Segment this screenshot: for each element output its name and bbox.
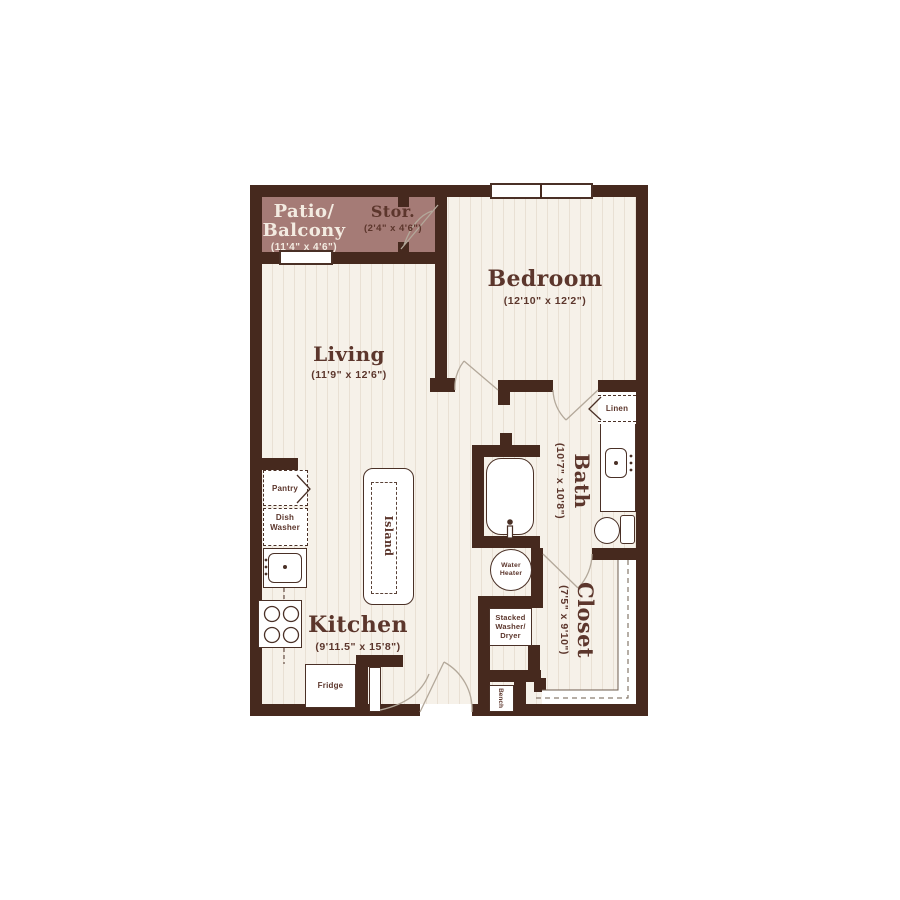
bedroom-label: Bedroom (12'10" x 12'2")	[465, 268, 625, 307]
linen-dash-bottom	[598, 421, 636, 422]
entry-closet-door-leaf	[369, 667, 381, 712]
wall-hall-b	[498, 380, 553, 392]
living-dims: (11'9" x 12'6")	[269, 369, 429, 381]
wall-tub-left	[472, 445, 484, 548]
bath-dims: (10'7" x 10'8")	[554, 443, 566, 519]
kitchen-sink	[268, 553, 302, 583]
wall-patio-b	[332, 252, 447, 264]
storage-title: Stor.	[348, 204, 438, 221]
kitchen-dims: (9'11.5" x 15'8")	[278, 641, 438, 653]
storage-label: Stor. (2'4" x 4'6")	[348, 204, 438, 234]
water-heater-label: Water Heater	[488, 562, 534, 578]
dishwasher-label-line1: Dish	[263, 513, 307, 523]
patio-dims: (11'4" x 4'6")	[258, 242, 350, 253]
kitchen-label: Kitchen (9'11.5" x 15'8")	[278, 614, 438, 653]
washer-dryer-label: Stacked Washer/ Dryer	[489, 613, 532, 640]
wall-fridge-bar	[356, 655, 403, 667]
wall-right	[636, 185, 648, 716]
wall-tub-top	[472, 445, 540, 457]
wall-bench-right	[514, 682, 526, 716]
closet-label: Closet (7'5" x 9'10")	[554, 545, 600, 695]
fridge-label: Fridge	[305, 681, 356, 691]
bench-label-text: Bench	[498, 688, 505, 708]
vanity-sink	[605, 448, 627, 478]
floor-plan-canvas: Patio/ Balcony (11'4" x 4'6") Stor. (2'4…	[0, 0, 900, 900]
bathtub	[486, 458, 534, 535]
island-label: Island	[380, 476, 396, 596]
closet-shelf-right	[618, 560, 636, 704]
living-label: Living (11'9" x 12'6")	[269, 344, 429, 381]
washer-dryer-label-line1: Stacked	[489, 613, 532, 622]
dishwasher-label-line2: Washer	[263, 523, 307, 533]
linen-dash-top	[598, 395, 636, 396]
toilet-tank	[620, 515, 635, 544]
wall-wd-stub	[528, 645, 540, 673]
bedroom-window-divider	[540, 184, 542, 198]
water-heater-label-line2: Heater	[488, 570, 534, 578]
pantry-label: Pantry	[263, 484, 307, 494]
wall-patio-a	[250, 252, 280, 264]
island-label-text: Island	[382, 516, 394, 557]
wall-hall-c	[598, 380, 636, 392]
closet-title: Closet	[574, 582, 596, 658]
wall-tub-stub	[500, 433, 512, 445]
dishwasher-label: Dish Washer	[263, 513, 307, 532]
bedroom-title: Bedroom	[465, 268, 625, 291]
toilet-bowl	[594, 517, 620, 544]
water-heater-label-line1: Water	[488, 562, 534, 570]
closet-dims: (7'5" x 9'10")	[558, 585, 570, 655]
wall-kitchen-stub	[252, 458, 298, 470]
storage-dims: (2'4" x 4'6")	[348, 223, 438, 234]
wall-bedroom-foot	[430, 378, 455, 392]
wall-hall-stub	[498, 392, 510, 405]
linen-label: Linen	[598, 404, 636, 414]
wall-bench-top	[478, 670, 541, 682]
patio-label-line1: Patio/	[258, 202, 350, 221]
washer-dryer-label-line3: Dryer	[489, 631, 532, 640]
patio-label: Patio/ Balcony (11'4" x 4'6")	[258, 202, 350, 253]
bench-label: Bench	[495, 680, 507, 716]
living-title: Living	[269, 344, 429, 365]
patio-label-line2: Balcony	[258, 221, 350, 240]
bath-title: Bath	[570, 453, 591, 508]
bath-label: Bath (10'7" x 10'8")	[550, 406, 596, 556]
wall-tub-bottom	[472, 536, 540, 548]
washer-dryer-label-line2: Washer/	[489, 622, 532, 631]
bedroom-dims: (12'10" x 12'2")	[465, 295, 625, 307]
wall-stor-pillar-bottom	[398, 242, 409, 252]
kitchen-title: Kitchen	[278, 614, 438, 637]
